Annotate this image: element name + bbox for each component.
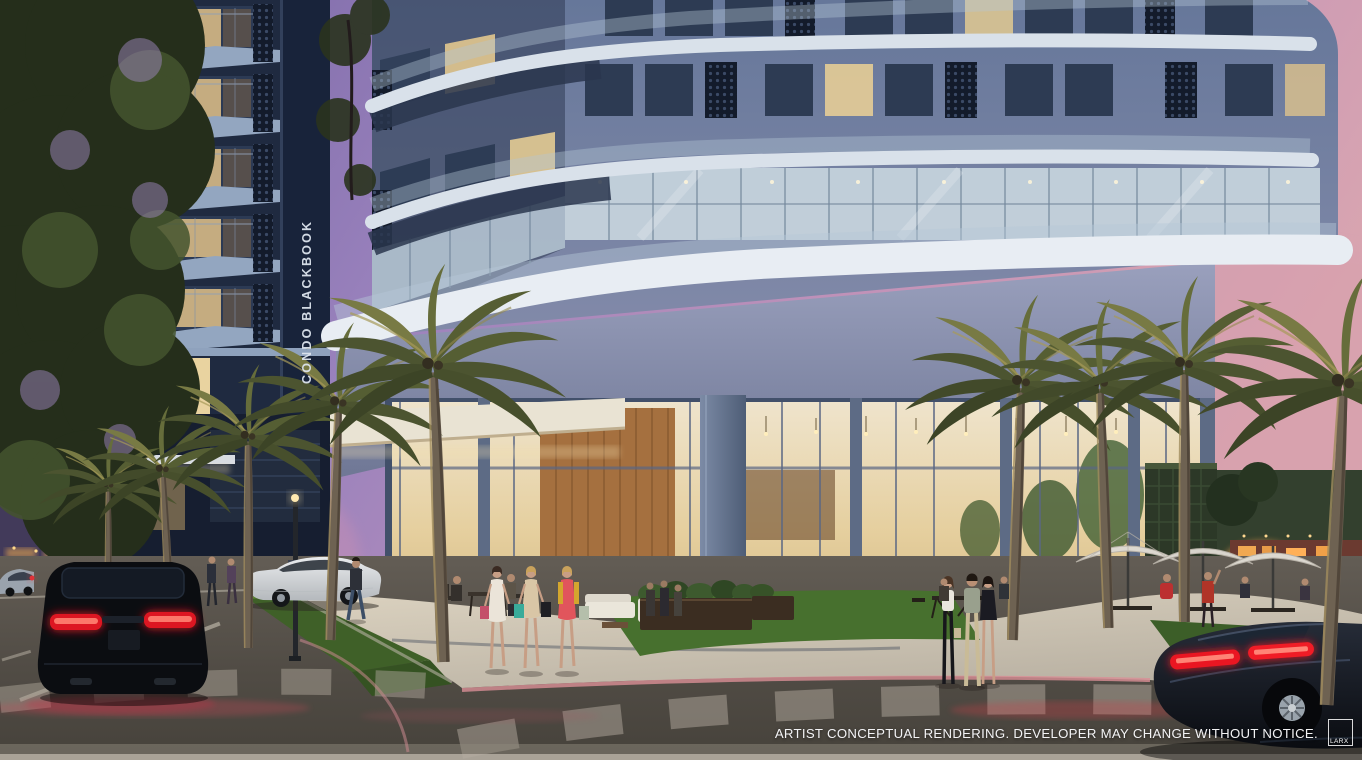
rendering-graphic (0, 0, 1362, 760)
planter-group (646, 581, 682, 617)
larx-logo-text: LARX (1330, 738, 1349, 745)
black-suv (38, 562, 208, 706)
condo-blackbook-watermark: CONDO BLACKBOOK (294, 182, 320, 384)
larx-logo: LARX (1328, 719, 1353, 746)
disclaimer-text: ARTIST CONCEPTUAL RENDERING. DEVELOPER M… (775, 726, 1318, 741)
artist-rendering: CONDO BLACKBOOK ARTIST CONCEPTUAL RENDER… (0, 0, 1362, 760)
